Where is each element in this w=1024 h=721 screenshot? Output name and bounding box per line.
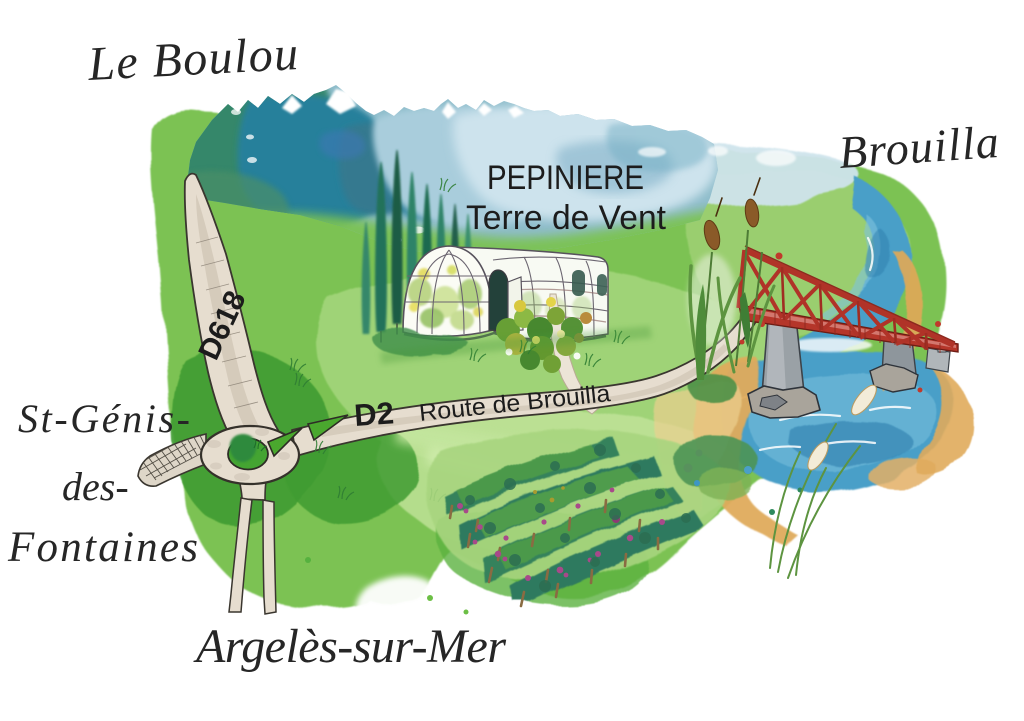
svg-text:Terre de Vent: Terre de Vent [466, 199, 667, 237]
svg-text:Le Boulou: Le Boulou [86, 27, 299, 91]
svg-text:des-: des- [62, 464, 129, 509]
svg-text:Brouilla: Brouilla [837, 116, 1000, 178]
svg-text:Fontaines: Fontaines [7, 524, 198, 571]
svg-text:St-Génis-: St-Génis- [18, 396, 190, 441]
svg-text:Argelès-sur-Mer: Argelès-sur-Mer [193, 620, 506, 673]
svg-text:PEPINIERE: PEPINIERE [487, 159, 644, 197]
svg-text:D2: D2 [353, 395, 395, 433]
